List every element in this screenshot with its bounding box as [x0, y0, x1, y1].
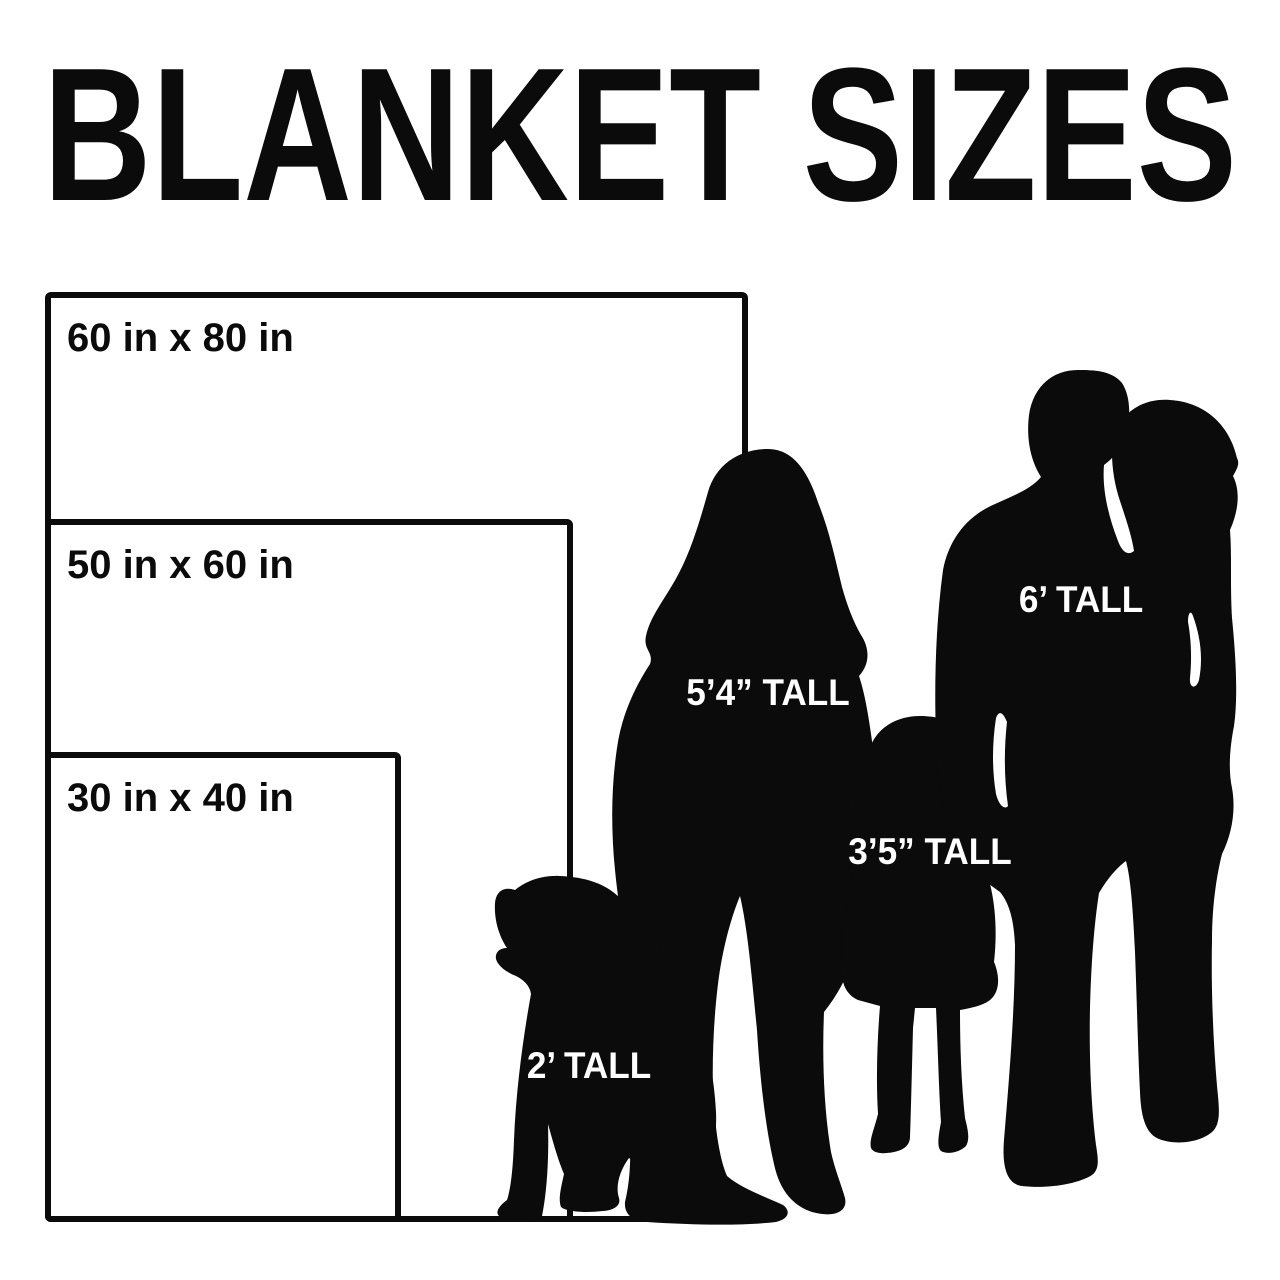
blanket-sizes-poster: BLANKET SIZES 60 in x 80 in 50 in x 60 i…	[0, 0, 1280, 1280]
woman-height-label: 5’4” TALL	[686, 672, 849, 714]
figures-canvas	[0, 0, 1280, 1280]
man-height-label: 6’ TALL	[1019, 579, 1143, 621]
dog-height-label: 2’ TALL	[527, 1045, 651, 1087]
man-with-toddler-silhouette	[935, 370, 1238, 1187]
child-height-label: 3’5” TALL	[848, 831, 1011, 873]
